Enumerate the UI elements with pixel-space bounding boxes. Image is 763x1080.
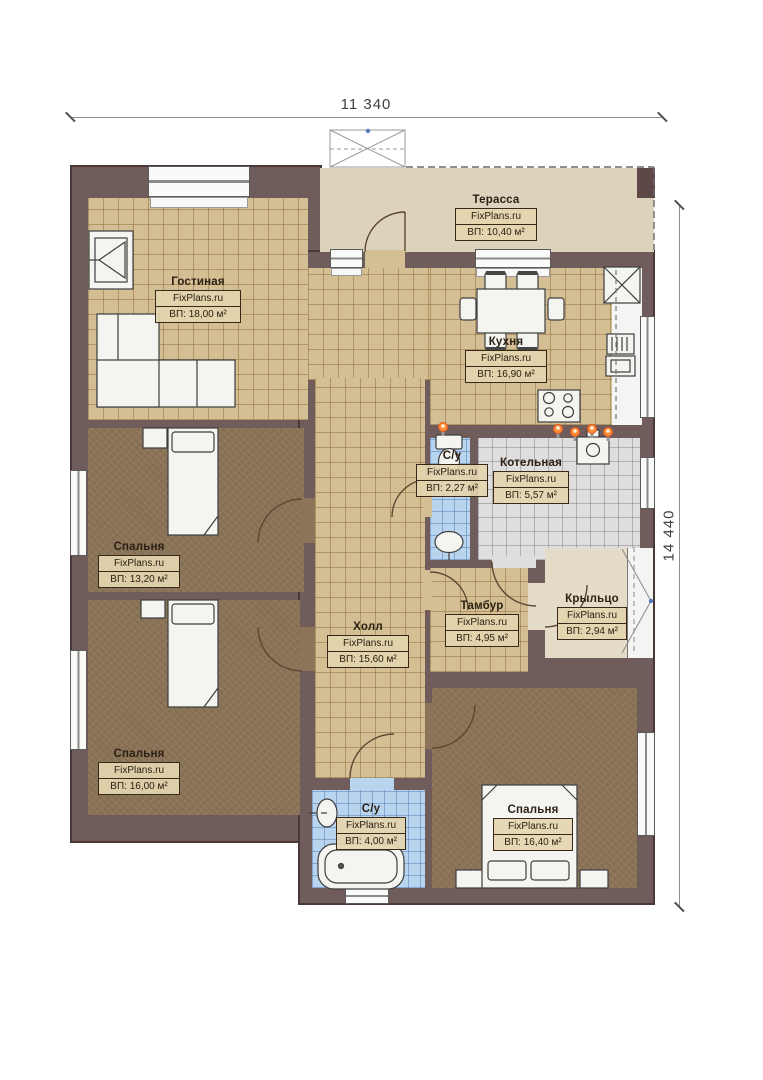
room-hall-floor xyxy=(315,378,425,778)
terrace-door-opening xyxy=(365,250,405,268)
watermark-box: FixPlans.ru ВП: 18,00 м² xyxy=(155,290,241,323)
bedroom1-left-window xyxy=(70,470,87,556)
watermark-box: FixPlans.ru ВП: 16,40 м² xyxy=(493,818,573,851)
room-label-porch: Крыльцо FixPlans.ru ВП: 2,94 м² xyxy=(557,593,627,640)
room-title: Кухня xyxy=(465,336,547,349)
bedroom3-door-opening xyxy=(425,703,434,749)
watermark-box: FixPlans.ru ВП: 2,27 м² xyxy=(416,464,488,497)
room-title: Спальня xyxy=(493,804,573,817)
watermark-box: FixPlans.ru ВП: 13,20 м² xyxy=(98,555,180,588)
watermark-box: FixPlans.ru ВП: 15,60 м² xyxy=(327,635,409,668)
kitchen-right-window xyxy=(640,316,655,418)
watermark-text: FixPlans.ru xyxy=(337,818,405,833)
room-area: ВП: 4,95 м² xyxy=(446,630,518,646)
room-label-tambour: Тамбур FixPlans.ru ВП: 4,95 м² xyxy=(445,600,519,647)
room-label-terrace: Терасса FixPlans.ru ВП: 10,40 м² xyxy=(455,194,537,241)
wc2-bottom-window xyxy=(345,888,389,904)
room-area: ВП: 16,00 м² xyxy=(99,778,179,794)
room-title: Гостиная xyxy=(155,276,241,289)
room-label-bedroom1: Спальня FixPlans.ru ВП: 13,20 м² xyxy=(98,541,180,588)
room-area: ВП: 4,00 м² xyxy=(337,833,405,849)
watermark-text: FixPlans.ru xyxy=(558,608,626,623)
room-title: Спальня xyxy=(98,541,180,554)
watermark-text: FixPlans.ru xyxy=(99,556,179,571)
watermark-box: FixPlans.ru ВП: 16,90 м² xyxy=(465,350,547,383)
kitchen-counter-zone xyxy=(612,268,642,425)
hall-tambour-door-opening xyxy=(423,570,432,610)
ridge-node-dot xyxy=(366,129,370,133)
room-area: ВП: 18,00 м² xyxy=(156,306,240,322)
room-area: ВП: 5,57 м² xyxy=(494,487,568,503)
room-title: Терасса xyxy=(455,194,537,207)
room-label-hall: Холл FixPlans.ru ВП: 15,60 м² xyxy=(327,621,409,668)
room-label-bedroom2: Спальня FixPlans.ru ВП: 16,00 м² xyxy=(98,748,180,795)
room-label-living: Гостиная FixPlans.ru ВП: 18,00 м² xyxy=(155,276,241,323)
room-title: Холл xyxy=(327,621,409,634)
room-title: Тамбур xyxy=(445,600,519,613)
watermark-text: FixPlans.ru xyxy=(456,209,536,224)
bedroom2-left-window xyxy=(70,650,87,750)
room-title: Спальня xyxy=(98,748,180,761)
room-area: ВП: 16,90 м² xyxy=(466,366,546,382)
room-title: Крыльцо xyxy=(557,593,627,606)
wc2-door-opening xyxy=(350,778,394,790)
kitchen-top-window xyxy=(475,249,551,268)
entrance-door-opening xyxy=(528,583,545,630)
room-label-wc1: С/у FixPlans.ru ВП: 2,27 м² xyxy=(416,450,488,497)
living-window-sill xyxy=(150,197,248,208)
room-label-kitchen: Кухня FixPlans.ru ВП: 16,90 м² xyxy=(465,336,547,383)
watermark-box: FixPlans.ru ВП: 4,00 м² xyxy=(336,817,406,850)
room-label-wc2: С/у FixPlans.ru ВП: 4,00 м² xyxy=(336,803,406,850)
room-area: ВП: 15,60 м² xyxy=(328,651,408,667)
porch-steps-zone xyxy=(627,548,653,658)
watermark-box: FixPlans.ru ВП: 5,57 м² xyxy=(493,471,569,504)
bedroom1-door-opening xyxy=(300,498,315,543)
top-dimension-line xyxy=(70,117,662,118)
top-dimension-label: 11 340 xyxy=(70,96,662,113)
watermark-box: FixPlans.ru ВП: 4,95 м² xyxy=(445,614,519,647)
room-title: С/у xyxy=(416,450,488,463)
floor-plan-canvas: Терасса FixPlans.ru ВП: 10,40 м² Гостина… xyxy=(0,0,763,1080)
right-dimension-line xyxy=(679,205,680,908)
watermark-text: FixPlans.ru xyxy=(328,636,408,651)
kitchen-window-sill xyxy=(476,268,550,277)
terrace-canopy-outline xyxy=(330,130,405,167)
room-bedroom3-floor xyxy=(432,688,637,888)
living-top-window xyxy=(148,166,250,197)
watermark-text: FixPlans.ru xyxy=(417,465,487,480)
boiler-tambour-door-opening xyxy=(492,556,536,568)
watermark-text: FixPlans.ru xyxy=(494,819,572,834)
terrace-column xyxy=(637,168,655,198)
room-area: ВП: 2,94 м² xyxy=(558,623,626,639)
room-title: С/у xyxy=(336,803,406,816)
dining-window-sill xyxy=(331,268,362,276)
room-label-bedroom3: Спальня FixPlans.ru ВП: 16,40 м² xyxy=(493,804,573,851)
bedroom3-right-window xyxy=(637,732,655,836)
right-dimension-label: 14 440 xyxy=(661,486,678,586)
room-dining-connector-floor xyxy=(308,268,430,380)
room-area: ВП: 16,40 м² xyxy=(494,834,572,850)
watermark-box: FixPlans.ru ВП: 10,40 м² xyxy=(455,208,537,241)
boiler-right-window xyxy=(640,457,655,509)
room-area: ВП: 2,27 м² xyxy=(417,480,487,496)
room-label-boiler: Котельная FixPlans.ru ВП: 5,57 м² xyxy=(493,457,569,504)
dining-top-window xyxy=(330,249,363,268)
room-area: ВП: 13,20 м² xyxy=(99,571,179,587)
watermark-text: FixPlans.ru xyxy=(466,351,546,366)
watermark-text: FixPlans.ru xyxy=(494,472,568,487)
watermark-text: FixPlans.ru xyxy=(446,615,518,630)
bedroom2-door-opening xyxy=(300,627,315,671)
watermark-box: FixPlans.ru ВП: 2,94 м² xyxy=(557,607,627,640)
watermark-box: FixPlans.ru ВП: 16,00 м² xyxy=(98,762,180,795)
room-area: ВП: 10,40 м² xyxy=(456,224,536,240)
watermark-text: FixPlans.ru xyxy=(156,291,240,306)
room-title: Котельная xyxy=(493,457,569,470)
watermark-text: FixPlans.ru xyxy=(99,763,179,778)
